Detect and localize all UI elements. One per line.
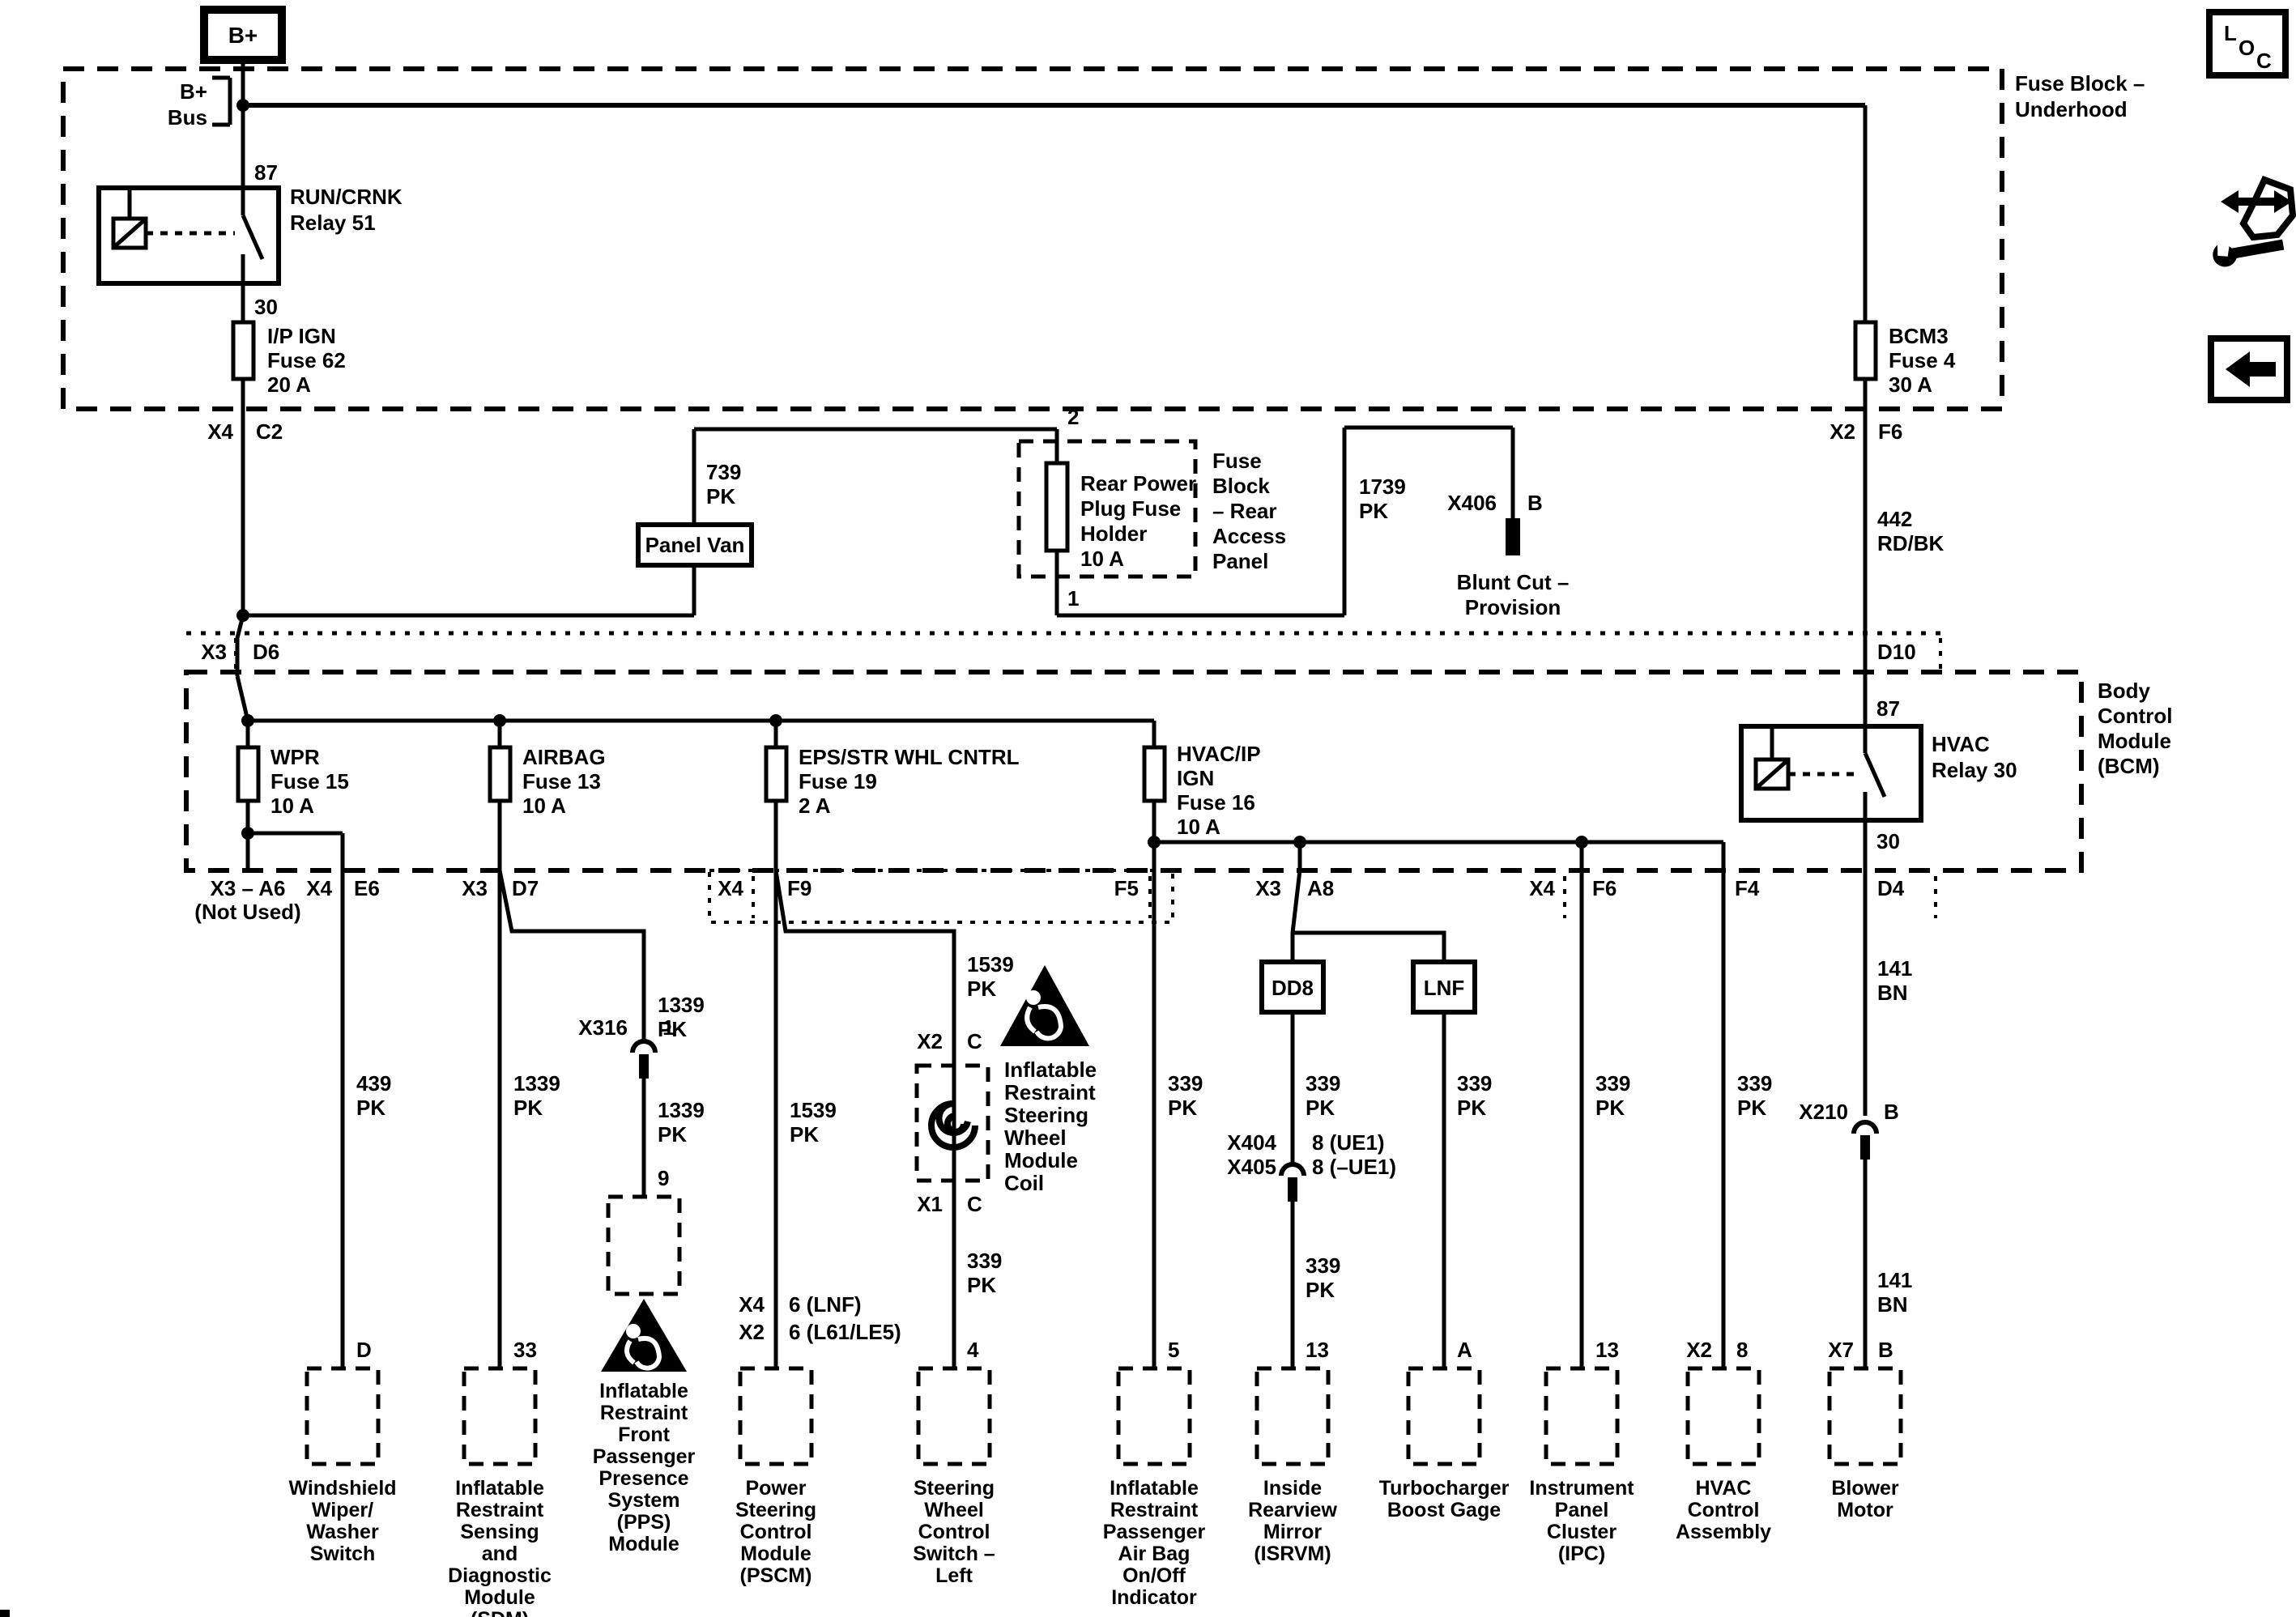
svg-text:4: 4 bbox=[967, 1338, 979, 1362]
svg-text:F6: F6 bbox=[1878, 419, 1902, 444]
svg-text:1539PK: 1539PK bbox=[967, 952, 1014, 1001]
svg-text:X1: X1 bbox=[917, 1192, 943, 1216]
module-terminals: D 33 X4 6 (LNF) X2 6 (L61/LE5) 4 5 13 A … bbox=[356, 1292, 1893, 1362]
svg-text:A: A bbox=[1457, 1338, 1472, 1362]
holder-terminal-2: 2 bbox=[1067, 405, 1079, 429]
option-tag-dd8: DD8 bbox=[1262, 962, 1323, 1012]
module-box-ipc bbox=[1546, 1368, 1617, 1464]
svg-text:339PK: 339PK bbox=[1306, 1071, 1340, 1120]
module-box-wiper-switch bbox=[307, 1368, 378, 1464]
svg-text:F4: F4 bbox=[1735, 876, 1760, 900]
caption-blower-motor: BlowerMotor bbox=[1831, 1477, 1899, 1521]
svg-text:1539PK: 1539PK bbox=[790, 1098, 837, 1147]
pps-terminal-9: 9 bbox=[658, 1166, 669, 1190]
svg-text:339PK: 339PK bbox=[1457, 1071, 1492, 1120]
svg-text:X210: X210 bbox=[1799, 1100, 1848, 1124]
svg-text:X404X405: X404X405 bbox=[1227, 1130, 1276, 1179]
pin-a6-not-used: X3 – A6(Not Used) bbox=[194, 876, 300, 924]
svg-text:LNF: LNF bbox=[1424, 976, 1465, 1000]
module-boxes bbox=[307, 1197, 1901, 1464]
loc-letter-o: O bbox=[2238, 36, 2255, 60]
svg-text:X7: X7 bbox=[1828, 1338, 1854, 1362]
module-box-pps bbox=[608, 1197, 679, 1294]
fuse-16-hvac-ip: HVAC/IPIGNFuse 1610 A bbox=[1144, 742, 1723, 870]
svg-text:F6: F6 bbox=[1592, 876, 1617, 900]
svg-text:1339PK: 1339PK bbox=[513, 1071, 560, 1120]
wire-739-pk-label: 739PK bbox=[706, 460, 741, 509]
steering-wheel-coil: X2 C X1 C 339PK InflatableRestraintSteer… bbox=[917, 965, 1097, 1368]
x406-pin-b: B bbox=[1527, 491, 1543, 515]
relay51-name: RUN/CRNKRelay 51 bbox=[290, 185, 403, 235]
svg-text:F5: F5 bbox=[1114, 876, 1139, 900]
svg-text:X3: X3 bbox=[1255, 876, 1281, 900]
svg-text:BCM3Fuse 430 A: BCM3Fuse 430 A bbox=[1889, 324, 1956, 397]
svg-text:E6: E6 bbox=[354, 876, 380, 900]
fuse-15-wpr: WPRFuse 1510 A bbox=[238, 721, 349, 870]
module-captions: WindshieldWiper/WasherSwitch InflatableR… bbox=[288, 1380, 1898, 1617]
svg-text:X4: X4 bbox=[207, 419, 233, 444]
svg-text:B: B bbox=[1884, 1100, 1899, 1124]
circuit-442-rdbk: 442RD/BK bbox=[1865, 453, 1945, 726]
loc-letter-l: L bbox=[2224, 21, 2237, 45]
svg-text:X4: X4 bbox=[306, 876, 332, 900]
svg-text:X316: X316 bbox=[578, 1015, 628, 1040]
caption-hvac-control: HVACControlAssembly bbox=[1676, 1477, 1771, 1543]
svg-text:X4: X4 bbox=[1529, 876, 1555, 900]
underhood-label: Fuse Block –Underhood bbox=[2015, 71, 2145, 121]
svg-text:I/P IGNFuse 6220 A: I/P IGNFuse 6220 A bbox=[267, 324, 346, 397]
caption-isrvm: InsideRearviewMirror(ISRVM) bbox=[1248, 1477, 1337, 1565]
module-box-hvac-control bbox=[1688, 1368, 1759, 1464]
svg-text:A8: A8 bbox=[1307, 876, 1334, 900]
svg-text:EPS/STR WHL CNTRLFuse 192 A: EPS/STR WHL CNTRLFuse 192 A bbox=[799, 745, 1020, 818]
svg-text:D10: D10 bbox=[1877, 640, 1916, 664]
svg-text:8: 8 bbox=[1736, 1338, 1748, 1362]
svg-text:Rear PowerPlug FuseHolder10 A: Rear PowerPlug FuseHolder10 A bbox=[1080, 471, 1196, 571]
svg-text:C: C bbox=[967, 1029, 982, 1053]
svg-text:X3: X3 bbox=[201, 640, 227, 664]
coil-label: InflatableRestraintSteeringWheelModuleCo… bbox=[1004, 1057, 1097, 1195]
svg-text:C2: C2 bbox=[256, 419, 283, 444]
svg-text:33: 33 bbox=[513, 1338, 537, 1362]
svg-text:339PK: 339PK bbox=[967, 1249, 1002, 1297]
loc-letter-c: C bbox=[2256, 49, 2272, 73]
x406-label: X406 bbox=[1447, 491, 1497, 515]
svg-text:339PK: 339PK bbox=[1595, 1071, 1630, 1120]
hvac-relay-30: 87 HVACRelay 30 30 bbox=[1741, 696, 2017, 870]
svg-text:D6: D6 bbox=[253, 640, 279, 664]
caption-pps: InflatableRestraintFrontPassengerPresenc… bbox=[593, 1380, 696, 1555]
module-box-pscm bbox=[740, 1368, 811, 1464]
connector-x404-x405: X404X405 8 (UE1)8 (–UE1) bbox=[1227, 1130, 1396, 1202]
svg-text:X4: X4 bbox=[718, 876, 743, 900]
svg-text:D4: D4 bbox=[1877, 876, 1905, 900]
circuit-a8-339-pk: DD8 LNF 339PK 339PK X404X405 8 (UE1)8 (–… bbox=[1227, 870, 1492, 1368]
panel-van-tag: Panel Van bbox=[638, 525, 752, 565]
svg-text:5: 5 bbox=[1168, 1338, 1179, 1362]
svg-text:X2: X2 bbox=[1686, 1338, 1712, 1362]
svg-text:X4: X4 bbox=[739, 1292, 765, 1317]
relay30-terminal-87: 87 bbox=[1876, 696, 1900, 721]
underhood-left-connector: X4 C2 bbox=[207, 419, 283, 444]
svg-text:6 (L61/LE5): 6 (L61/LE5) bbox=[789, 1320, 901, 1344]
b-plus-label: B+ bbox=[228, 23, 258, 48]
x3-connector-row: X3 D6 D10 bbox=[186, 633, 1944, 670]
fuse-13-airbag: AIRBAGFuse 1310 A bbox=[490, 721, 606, 870]
airbag-warning-icon bbox=[1000, 965, 1089, 1046]
svg-text:C: C bbox=[967, 1192, 982, 1216]
caption-pscm: PowerSteeringControlModule(PSCM) bbox=[735, 1477, 816, 1587]
bcm-fuse-bus bbox=[237, 676, 1154, 747]
svg-text:X2: X2 bbox=[739, 1320, 765, 1344]
relay51-terminal-87: 87 bbox=[254, 160, 278, 185]
blunt-cut-label: Blunt Cut –Provision bbox=[1457, 570, 1570, 619]
module-box-blower-motor bbox=[1830, 1368, 1901, 1464]
caption-turbo-gage: TurbochargerBoost Gage bbox=[1379, 1477, 1510, 1521]
svg-text:8 (UE1)8 (–UE1): 8 (UE1)8 (–UE1) bbox=[1312, 1130, 1396, 1179]
circuit-141-bn: 141BN X210 B 141BN bbox=[1799, 870, 1912, 1368]
svg-text:1: 1 bbox=[662, 1015, 674, 1040]
caption-passenger-indicator: InflatableRestraintPassengerAir BagOn/Of… bbox=[1103, 1477, 1206, 1609]
fuse-62: I/P IGNFuse 6220 A bbox=[233, 283, 346, 453]
circuit-f5-339-pk: 339PK bbox=[1154, 870, 1203, 1368]
wiring-diagram-page: Fuse Block –Underhood B+ B+Bus 87 RUN/CR… bbox=[0, 0, 2296, 1617]
circuit-f4-339-pk: 339PK bbox=[1723, 870, 1772, 1368]
svg-text:141BN: 141BN bbox=[1877, 956, 1912, 1005]
caption-wiper-switch: WindshieldWiper/WasherSwitch bbox=[288, 1477, 396, 1565]
b-plus-bus-label: B+Bus bbox=[168, 78, 230, 130]
svg-text:13: 13 bbox=[1306, 1338, 1329, 1362]
svg-text:339PK: 339PK bbox=[1737, 1071, 1772, 1120]
svg-text:AIRBAGFuse 1310 A: AIRBAGFuse 1310 A bbox=[522, 745, 606, 818]
svg-text:X2: X2 bbox=[1830, 419, 1855, 444]
rear-access-block-label: FuseBlock– RearAccessPanel bbox=[1212, 449, 1286, 573]
page-corner-mark bbox=[0, 1610, 10, 1617]
fuse-block-underhood: Fuse Block –Underhood bbox=[63, 69, 2145, 409]
svg-text:DD8: DD8 bbox=[1272, 976, 1314, 1000]
svg-text:6 (LNF): 6 (LNF) bbox=[789, 1292, 862, 1317]
svg-text:HVAC/IPIGNFuse 1610 A: HVAC/IPIGNFuse 1610 A bbox=[1177, 742, 1261, 839]
relay30-terminal-30: 30 bbox=[1876, 829, 1900, 853]
holder-terminal-1: 1 bbox=[1067, 586, 1079, 611]
svg-text:141BN: 141BN bbox=[1877, 1268, 1912, 1317]
airbag-warning-icon-pps bbox=[601, 1299, 687, 1372]
caption-sdm: InflatableRestraintSensingandDiagnosticM… bbox=[448, 1477, 552, 1617]
svg-text:339PK: 339PK bbox=[1168, 1071, 1203, 1120]
blunt-cut-stub bbox=[1506, 518, 1520, 555]
connector-x210: X210 B bbox=[1799, 1100, 1899, 1160]
svg-text:F9: F9 bbox=[787, 876, 811, 900]
back-button[interactable] bbox=[2211, 338, 2287, 400]
svg-text:13: 13 bbox=[1595, 1338, 1619, 1362]
svg-text:X3: X3 bbox=[462, 876, 488, 900]
wire-442-label: 442RD/BK bbox=[1877, 507, 1945, 555]
svg-text:D7: D7 bbox=[512, 876, 539, 900]
fuse-19-eps: EPS/STR WHL CNTRLFuse 192 A bbox=[766, 721, 1020, 870]
module-box-passenger-indicator bbox=[1118, 1368, 1190, 1464]
option-tag-lnf: LNF bbox=[1413, 962, 1475, 1012]
bcm-pin-row: X3 – A6(Not Used) X4 E6 X3 D7 X4 F9 F5 X… bbox=[194, 870, 1936, 924]
svg-text:439PK: 439PK bbox=[356, 1071, 391, 1120]
relay51-terminal-30: 30 bbox=[254, 295, 278, 319]
circuit-f6-339-pk: 339PK bbox=[1582, 870, 1630, 1368]
svg-text:D: D bbox=[356, 1338, 372, 1362]
svg-text:B: B bbox=[1878, 1338, 1893, 1362]
module-box-isrvm bbox=[1257, 1368, 1328, 1464]
svg-text:B+Bus: B+Bus bbox=[168, 79, 207, 130]
svg-text:WPRFuse 1510 A: WPRFuse 1510 A bbox=[270, 745, 349, 818]
fuse-4: BCM3Fuse 430 A bbox=[1855, 322, 1956, 453]
caption-ipc: InstrumentPanelCluster(IPC) bbox=[1529, 1477, 1634, 1565]
svg-text:1339PK: 1339PK bbox=[658, 1098, 705, 1147]
b-plus-net bbox=[236, 58, 1865, 324]
module-box-steering-switch bbox=[918, 1368, 990, 1464]
rear-power-plug-fuse-holder: 2 Rear PowerPlug FuseHolder10 A 1 FuseBl… bbox=[1019, 405, 1286, 615]
module-box-turbo-gage bbox=[1408, 1368, 1480, 1464]
wiring-diagram-canvas: Fuse Block –Underhood B+ B+Bus 87 RUN/CR… bbox=[0, 0, 2296, 1617]
loc-button[interactable]: L O C bbox=[2209, 12, 2285, 75]
svg-text:339PK: 339PK bbox=[1306, 1253, 1340, 1302]
bcm-label: BodyControlModule(BCM) bbox=[2098, 679, 2172, 778]
module-box-sdm bbox=[464, 1368, 535, 1464]
relay30-name: HVACRelay 30 bbox=[1932, 732, 2017, 782]
wire-1739-pk-label: 1739PK bbox=[1359, 474, 1406, 523]
run-crnk-relay: 87 RUN/CRNKRelay 51 30 bbox=[99, 160, 403, 319]
navigation-arrows-wrench-icon[interactable] bbox=[2211, 180, 2293, 269]
caption-steering-switch: SteeringWheelControlSwitch –Left bbox=[913, 1477, 995, 1587]
svg-text:X2: X2 bbox=[917, 1029, 943, 1053]
b-plus-terminal: B+ bbox=[204, 10, 282, 60]
svg-text:Panel Van: Panel Van bbox=[645, 533, 745, 557]
